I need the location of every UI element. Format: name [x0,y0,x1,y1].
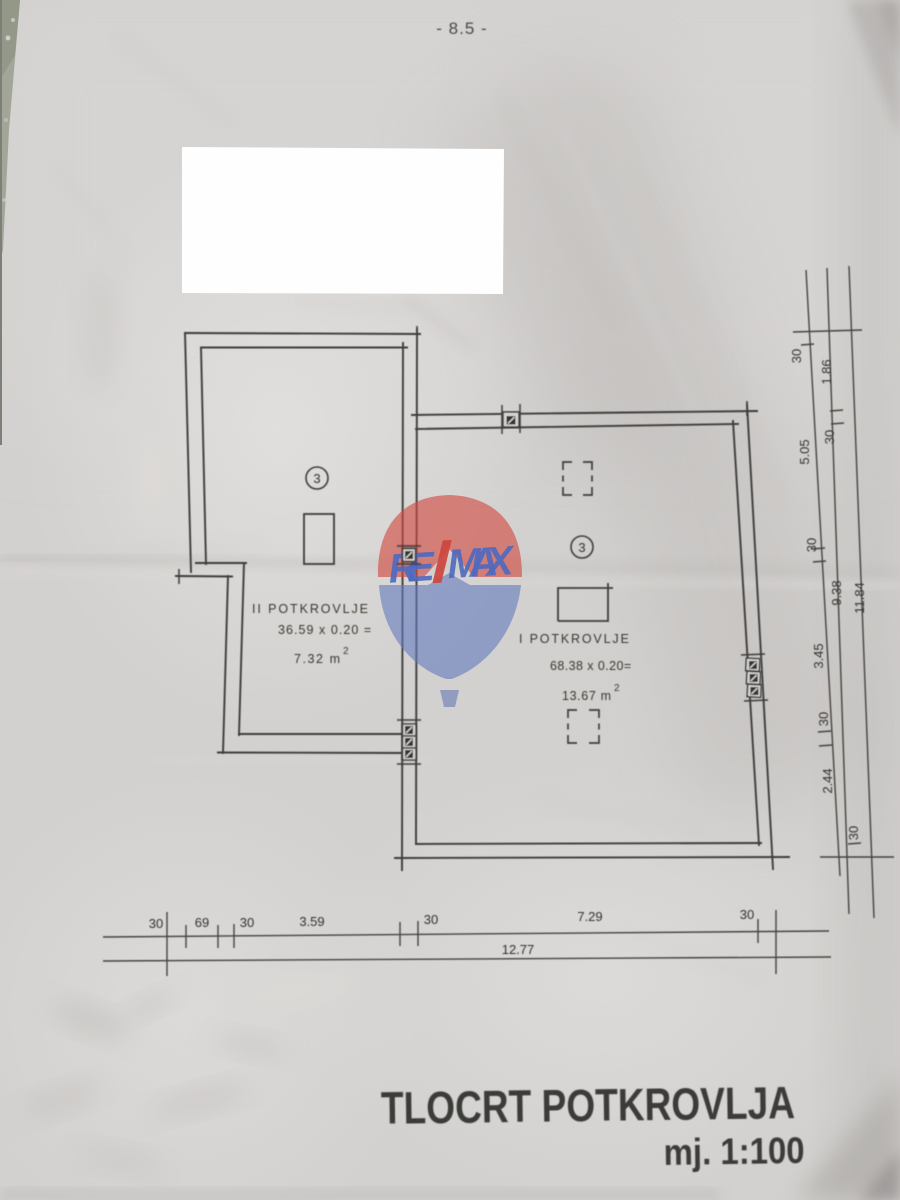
svg-text:30: 30 [846,826,861,840]
svg-text:30: 30 [424,912,438,927]
svg-text:II POTKROVLJE: II POTKROVLJE [252,602,370,616]
svg-text:I POTKROVLJE: I POTKROVLJE [519,632,631,646]
svg-text:1.86: 1.86 [819,359,834,384]
svg-text:68.38 x 0.20=: 68.38 x 0.20= [550,659,632,673]
svg-text:2: 2 [614,683,620,694]
svg-text:- 8.5 -: - 8.5 - [436,19,487,38]
svg-text:TLOCRT POTKROVLJA: TLOCRT POTKROVLJA [381,1077,796,1134]
svg-text:mj. 1:100: mj. 1:100 [663,1130,805,1173]
svg-text:3: 3 [578,540,585,555]
svg-text:30: 30 [822,430,837,444]
svg-text:69: 69 [195,915,209,930]
svg-text:7.29: 7.29 [577,909,602,924]
svg-text:5.05: 5.05 [797,439,812,464]
svg-text:7.32 m: 7.32 m [294,652,341,666]
svg-text:30: 30 [149,916,163,931]
svg-text:2.44: 2.44 [820,768,835,793]
svg-text:30: 30 [240,915,254,930]
svg-text:MAX: MAX [446,537,517,587]
svg-text:13.67 m: 13.67 m [562,689,612,703]
svg-text:30: 30 [816,712,831,726]
svg-text:3: 3 [313,471,320,486]
svg-text:3.45: 3.45 [811,643,826,668]
svg-text:30: 30 [804,538,819,552]
svg-text:11.84: 11.84 [852,582,867,614]
svg-text:30: 30 [740,907,754,922]
svg-text:12.77: 12.77 [502,942,535,957]
svg-text:36.59 x 0.20 =: 36.59 x 0.20 = [278,623,372,637]
svg-text:9.38: 9.38 [829,580,844,605]
svg-text:2: 2 [343,646,349,657]
svg-text:3.59: 3.59 [299,914,324,929]
svg-text:30: 30 [789,349,804,363]
